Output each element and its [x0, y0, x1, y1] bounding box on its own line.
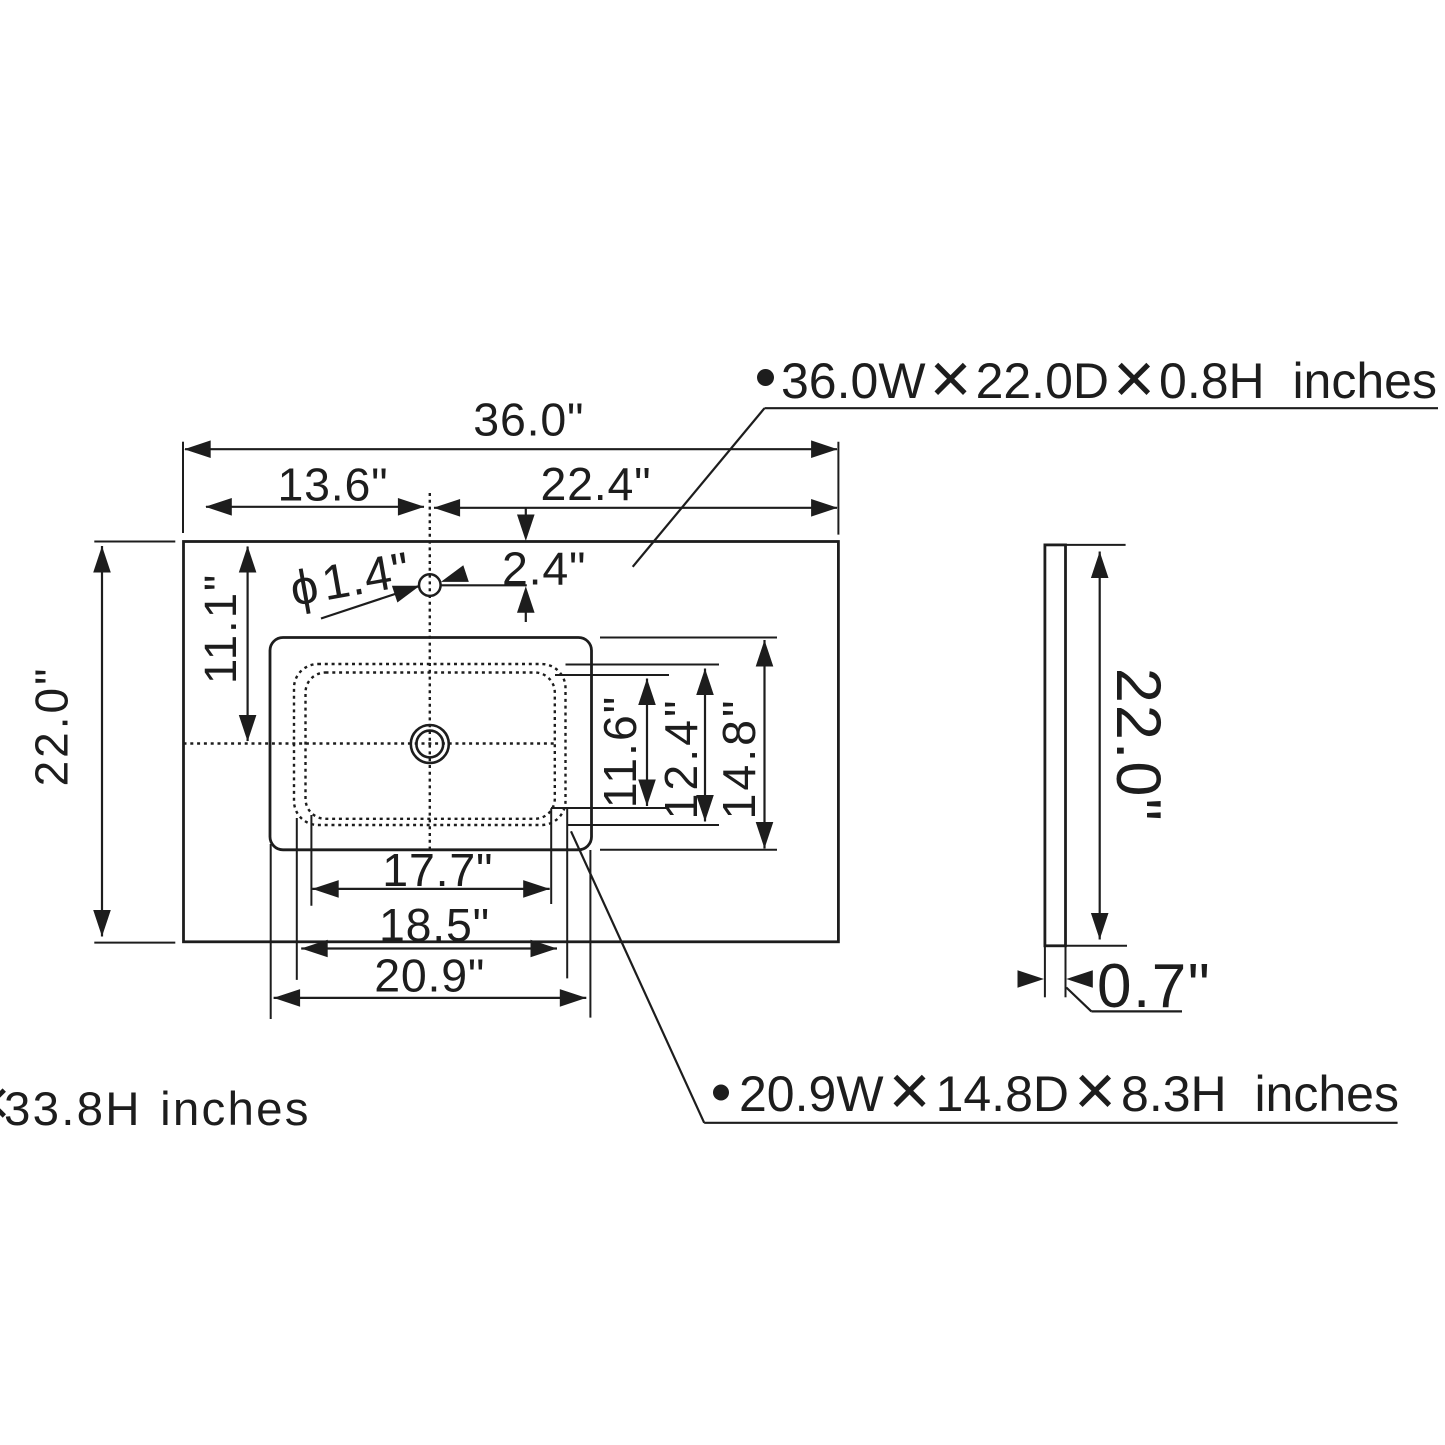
svg-text:17.7": 17.7"	[382, 844, 493, 896]
svg-text:22.0": 22.0"	[1103, 668, 1173, 823]
svg-text:20.9": 20.9"	[374, 949, 485, 1001]
svg-text:14.8": 14.8"	[713, 697, 765, 819]
svg-text:0.7": 0.7"	[1097, 952, 1211, 1021]
svg-text:36.0": 36.0"	[473, 393, 584, 445]
svg-text:18.5": 18.5"	[379, 899, 490, 951]
svg-text:11.6": 11.6"	[594, 695, 646, 809]
svg-text:2.4": 2.4"	[502, 543, 586, 595]
svg-text:22.4": 22.4"	[540, 458, 651, 510]
svg-text:11.1": 11.1"	[195, 573, 246, 684]
svg-text:22.0": 22.0"	[26, 666, 78, 787]
svg-text:12.4": 12.4"	[655, 697, 707, 819]
svg-text:13.6": 13.6"	[277, 459, 388, 511]
